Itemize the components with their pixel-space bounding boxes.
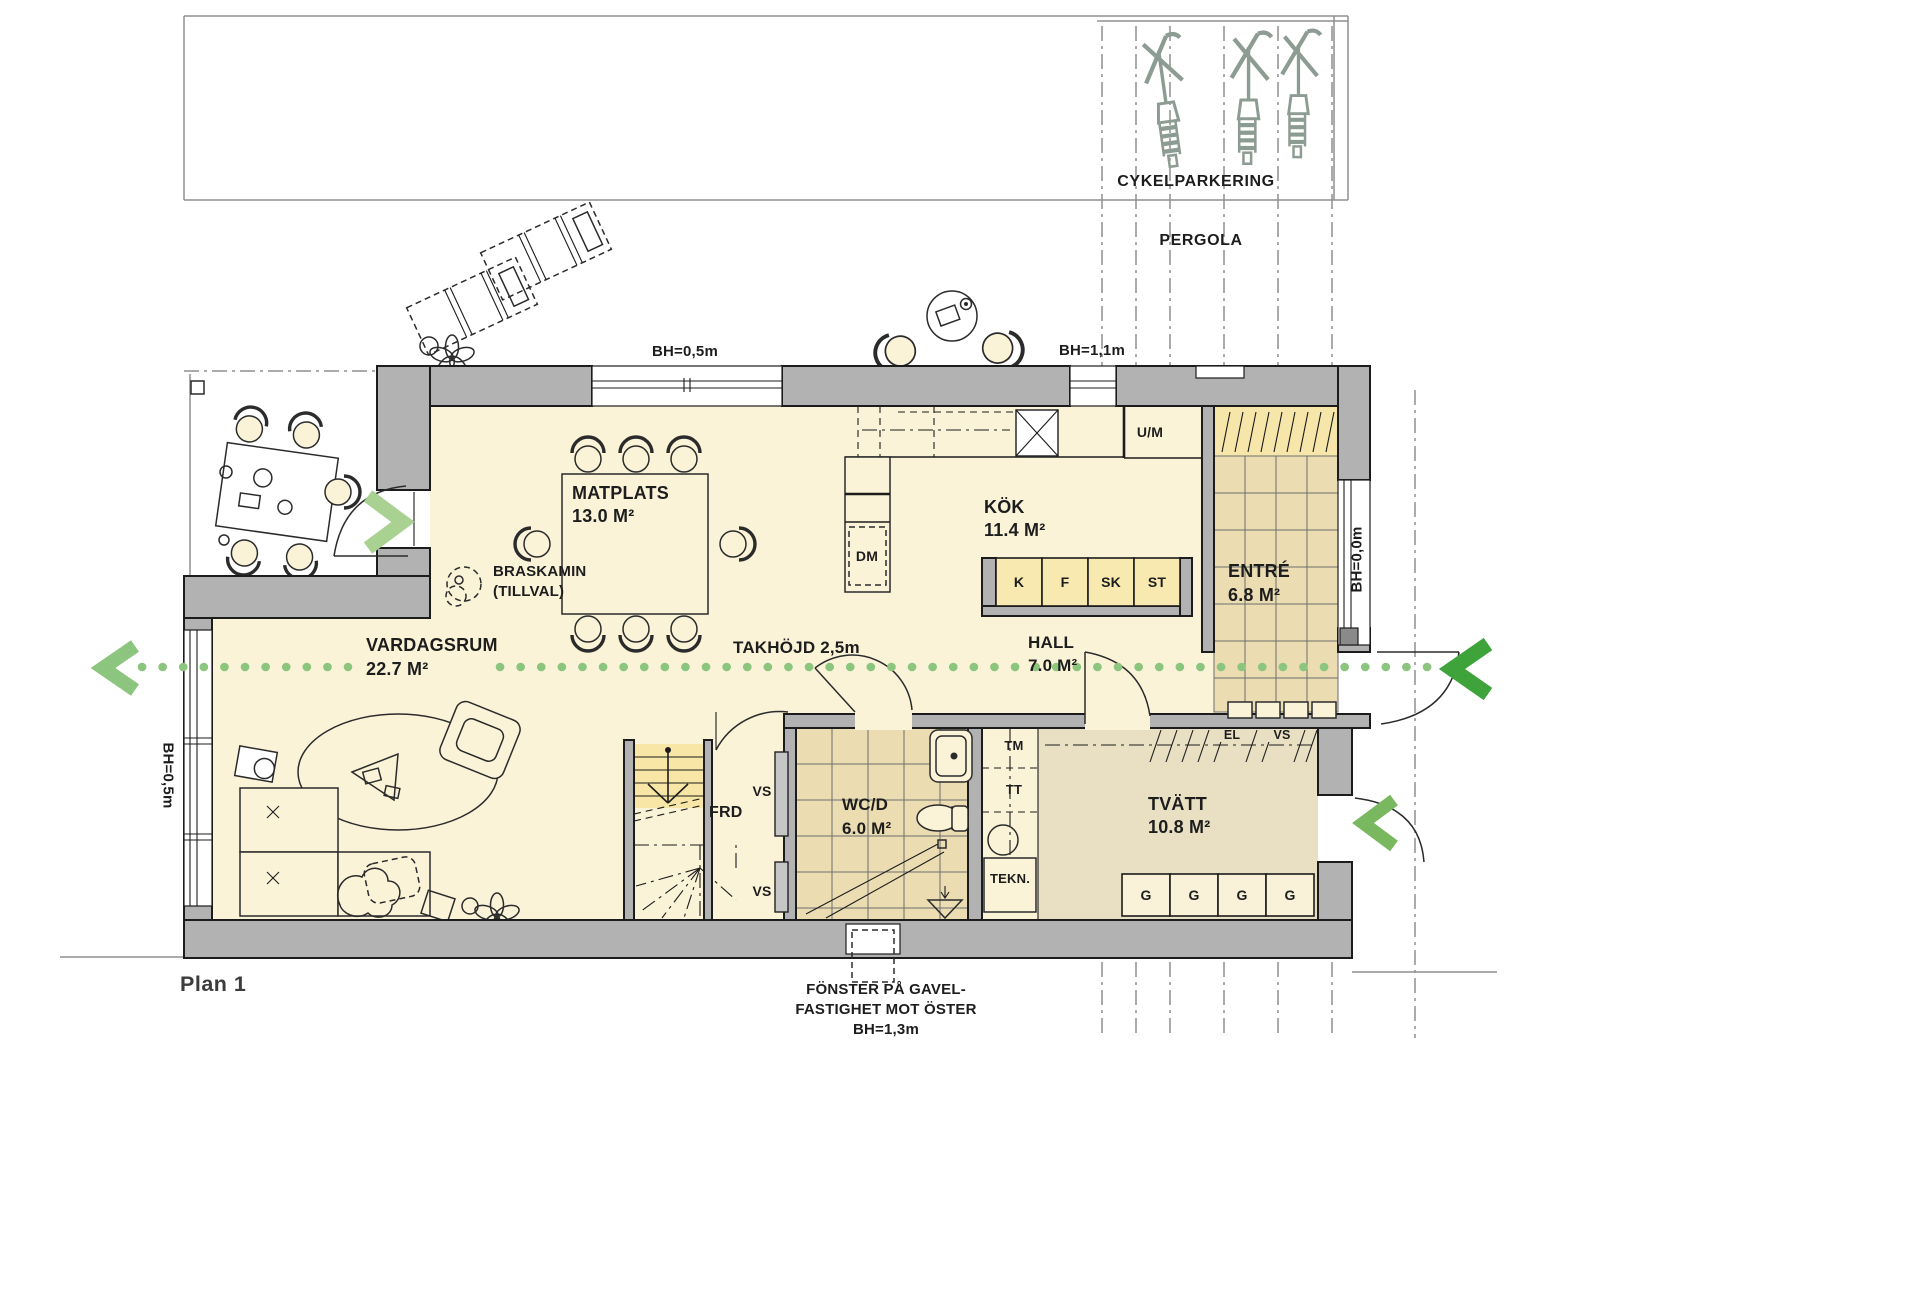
room-label-kok: KÖK bbox=[984, 498, 1025, 516]
section-takhojd-label: TAKHÖJD 2,5m bbox=[733, 639, 860, 656]
entre-floor-tiles bbox=[1214, 406, 1338, 712]
dm-label: DM bbox=[837, 549, 897, 563]
window-height-kitchen-label: BH=1,1m bbox=[1017, 343, 1167, 358]
bicycle-icons bbox=[1140, 31, 1321, 169]
tm-label: TM bbox=[989, 739, 1039, 752]
section-arrow-left-icon bbox=[103, 646, 135, 690]
bicycle-icon bbox=[1232, 33, 1272, 164]
gavel-note-line2: FASTIGHET MOT ÖSTER bbox=[756, 1002, 1016, 1017]
room-area-tvatt: 10.8 M² bbox=[1148, 818, 1210, 836]
vs-shaft-bottom-label: VS bbox=[737, 884, 787, 898]
room-area-kok: 11.4 M² bbox=[984, 521, 1045, 539]
site-corner-marker bbox=[191, 381, 204, 394]
plan-title: Plan 1 bbox=[180, 974, 246, 996]
um-label: U/M bbox=[1110, 425, 1190, 439]
cabinet-st-label: ST bbox=[1137, 575, 1177, 589]
window-height-left-label: BH=0,5m bbox=[161, 716, 176, 836]
cabinet-sk-label: SK bbox=[1091, 575, 1131, 589]
cykelparkering-label: CYKELPARKERING bbox=[1046, 174, 1346, 190]
room-area-entre: 6.8 M² bbox=[1228, 586, 1280, 604]
room-label-tvatt: TVÄTT bbox=[1148, 795, 1207, 813]
entry-arrow-tvatt-icon bbox=[1363, 800, 1394, 846]
wardrobe-g2-label: G bbox=[1174, 888, 1214, 902]
braskamin-label: BRASKAMIN bbox=[493, 564, 586, 579]
cabinet-f-label: F bbox=[1045, 575, 1085, 589]
vs-shaft-top-label: VS bbox=[737, 784, 787, 798]
cabinet-k-label: K bbox=[999, 575, 1039, 589]
room-label-hall: HALL bbox=[1028, 634, 1074, 651]
bicycle-icon bbox=[1282, 31, 1321, 158]
room-area-matplats: 13.0 M² bbox=[572, 507, 634, 525]
gavel-note-line3: BH=1,3m bbox=[756, 1022, 1016, 1037]
room-label-vardagsrum: VARDAGSRUM bbox=[366, 636, 498, 654]
window-height-top-label: BH=0,5m bbox=[610, 344, 760, 359]
room-label-wcd: WC/D bbox=[842, 796, 888, 813]
outdoor-bistro-set bbox=[871, 291, 1027, 375]
room-label-entre: ENTRÉ bbox=[1228, 562, 1290, 580]
tekn-label: TEKN. bbox=[975, 872, 1045, 885]
floor-plan-page: CYKELPARKERING PERGOLA BH=0,5m BH=1,1m B… bbox=[0, 0, 1920, 1312]
room-label-frd: FRD bbox=[709, 805, 742, 821]
wardrobe-g4-label: G bbox=[1270, 888, 1310, 902]
outdoor-desk-set bbox=[216, 404, 360, 581]
room-area-hall: 7.0 M² bbox=[1028, 657, 1077, 674]
wardrobe-g3-label: G bbox=[1222, 888, 1262, 902]
tt-label: TT bbox=[989, 783, 1039, 796]
wardrobe-g1-label: G bbox=[1126, 888, 1166, 902]
gavel-note-line1: FÖNSTER PÅ GAVEL- bbox=[756, 982, 1016, 997]
window-height-right-label: BH=0,0m bbox=[1350, 500, 1365, 620]
braskamin-tillval-label: (TILLVAL) bbox=[493, 584, 564, 599]
pergola-label: PERGOLA bbox=[1101, 233, 1301, 249]
sun-loungers bbox=[407, 202, 612, 355]
floor-plan-drawing bbox=[0, 0, 1920, 1312]
vs-strip-label: VS bbox=[1264, 729, 1300, 742]
room-area-wcd: 6.0 M² bbox=[842, 820, 891, 837]
bicycle-icon bbox=[1140, 33, 1198, 168]
room-area-vardagsrum: 22.7 M² bbox=[366, 660, 428, 678]
room-label-matplats: MATPLATS bbox=[572, 484, 669, 502]
el-label: EL bbox=[1214, 729, 1250, 742]
entry-arrow-terrace-icon bbox=[368, 496, 403, 548]
